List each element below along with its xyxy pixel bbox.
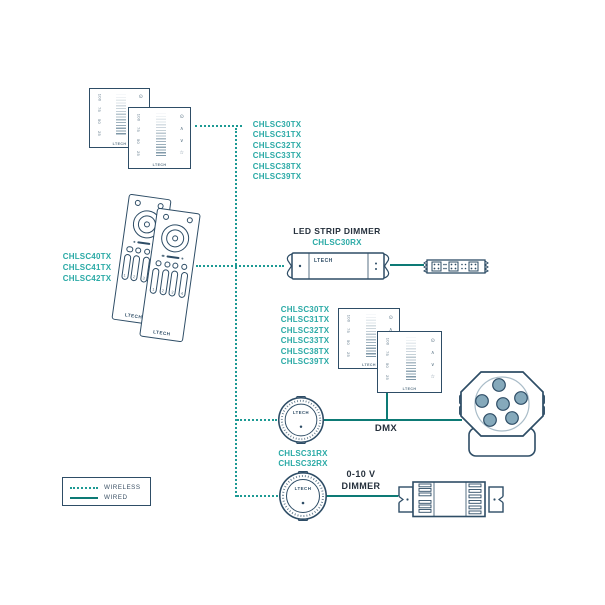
indicator-dot: [302, 502, 305, 505]
wall-panel-dimmer-front: 100 75 50 25 ⊙ ∧ ∨ ☆ LTECH: [377, 331, 442, 393]
indicator-dot: [300, 425, 302, 427]
scene-button: [143, 248, 150, 255]
model-label: CHLSC30TX: [276, 305, 334, 315]
zone-button: 1: [121, 254, 132, 281]
power-icon: ⊙: [180, 115, 184, 120]
zone-button: 1: [149, 268, 160, 295]
wireless-line-sample: [70, 487, 98, 489]
brightness-scale: 100 75 50 25: [384, 335, 392, 384]
legend-wireless-row: WIRELESS: [70, 483, 150, 493]
brightness-up-icon: ∧: [180, 127, 184, 132]
model-label: CHLSC33TX: [246, 151, 308, 161]
panel-buttons: ⊙ ∧ ∨ ☆: [431, 335, 435, 384]
scene-button: [181, 263, 188, 270]
led-strip-dimmer-model: CHLSC30RX: [284, 238, 390, 247]
on-button: [134, 200, 141, 207]
power-icon: ⊙: [389, 316, 393, 321]
wired-link-dmx: [323, 419, 462, 421]
scale-label: 75: [346, 327, 351, 332]
model-label: CHLSC42TX: [56, 273, 118, 284]
dial-ring: [165, 228, 185, 248]
wired-label: WIRED: [104, 494, 128, 501]
slider-bar: [137, 241, 150, 245]
wall-panel-model-list-mid: CHLSC30TX CHLSC31TX CHLSC32TX CHLSC33TX …: [276, 305, 334, 367]
power-icon: ⊙: [139, 95, 143, 100]
wired-link-receiver-to-strip: [390, 264, 424, 266]
brand-label: LTECH: [141, 328, 183, 339]
model-label: CHLSC32TX: [246, 141, 308, 151]
scene-button: [172, 262, 179, 269]
010v-line2: DIMMER: [330, 481, 392, 493]
scene-button: [164, 261, 171, 268]
model-label: CHLSC39TX: [276, 357, 334, 367]
slider-dot: [181, 257, 184, 260]
scale-label: 100: [136, 113, 141, 121]
wired-link-panel-to-dmx: [386, 392, 388, 419]
remote-top-buttons: [157, 209, 200, 225]
dmx-label: DMX: [366, 423, 406, 434]
wired-line-sample: [70, 497, 98, 499]
model-label: CHLSC33TX: [276, 336, 334, 346]
zone-buttons: 1 2 3 4: [146, 268, 191, 300]
scale-label: 50: [136, 139, 141, 144]
brand-label: LTECH: [295, 486, 312, 491]
scale-label: 75: [385, 351, 390, 356]
brand-label: LTECH: [293, 410, 309, 415]
zone-button: 2: [130, 255, 141, 282]
knob-receiver-dmx: LTECH: [277, 396, 325, 444]
slider-dot: [133, 240, 136, 243]
model-label: CHLSC32TX: [276, 326, 334, 336]
model-label: CHLSC39TX: [246, 172, 308, 182]
wall-panel-face: 100 75 50 25 ⊙ ∧ ∨ ☆ LTECH: [378, 332, 441, 392]
model-label: CHLSC40TX: [56, 251, 118, 262]
010v-dimmer-label: 0-10 V DIMMER: [330, 469, 392, 492]
brightness-up-icon: ∧: [431, 351, 435, 356]
zone-button: 2: [159, 269, 170, 296]
touch-slider: [406, 337, 416, 381]
wireless-branch-dmx-knob: [237, 419, 277, 421]
slider-dot: [161, 254, 164, 257]
model-label: CHLSC41TX: [56, 262, 118, 273]
diagram-canvas: { "brand": "LTECH", "colors": { "outline…: [0, 0, 605, 605]
terminal-dot: [375, 263, 377, 265]
wireless-link-panels-to-models: [195, 125, 242, 127]
brightness-scale: 100 75 50 25: [135, 111, 143, 160]
power-icon: ⊙: [431, 339, 435, 344]
led-strip-dimmer-receiver: LTECH: [284, 250, 392, 282]
model-label: CHLSC30TX: [246, 120, 308, 130]
brand-label: LTECH: [378, 387, 441, 391]
brand-label: LTECH: [314, 258, 333, 264]
brightness-scale: 100 75 50 25: [345, 312, 353, 360]
wall-panel-dimmer-front: 100 75 50 25 ⊙ ∧ ∨ ☆ LTECH: [128, 107, 191, 169]
model-label: CHLSC31TX: [276, 315, 334, 325]
wall-panel-face: 100 75 50 25 ⊙ ∧ ∨ ☆ LTECH: [129, 108, 190, 168]
end-tab-right: [489, 487, 503, 512]
knob-inner: [285, 404, 317, 436]
scale-label: 25: [385, 375, 390, 380]
slider-bar: [166, 255, 179, 259]
dial-wheel: [159, 223, 191, 255]
model-label: CHLSC31TX: [246, 130, 308, 140]
panel-buttons: ⊙ ∧ ∨ ☆: [180, 111, 184, 160]
terminal-dot: [493, 498, 495, 500]
remote-model-list: CHLSC40TX CHLSC41TX CHLSC42TX: [56, 251, 118, 285]
scale-label: 100: [97, 94, 102, 102]
led-strip: [422, 256, 490, 277]
terminal-dot: [406, 498, 408, 500]
wireless-branch-010v-knob: [237, 495, 278, 497]
model-label: CHLSC32RX: [272, 459, 334, 469]
led-strip-dimmer-title: LED STRIP DIMMER: [284, 226, 390, 237]
wired-link-knob-to-dimmer: [326, 495, 400, 497]
scene-button: [126, 245, 133, 252]
scale-label: 75: [136, 127, 141, 132]
knob-inner: [287, 480, 320, 513]
knob-receiver-010v: LTECH: [278, 471, 328, 521]
terminal-dot: [299, 265, 301, 267]
touch-slider: [156, 113, 166, 157]
par-light-fixture: [459, 370, 545, 458]
scene-icon: ☆: [431, 375, 435, 380]
touch-slider: [116, 94, 126, 136]
scene-icon: ☆: [180, 151, 184, 156]
scale-label: 50: [385, 363, 390, 368]
010v-line1: 0-10 V: [330, 469, 392, 481]
end-tab-left: [399, 487, 413, 512]
scale-label: 75: [97, 107, 102, 112]
scene-button: [135, 247, 142, 254]
receiver-body: [292, 253, 384, 279]
knob-model-list: CHLSC31RX CHLSC32RX: [272, 449, 334, 469]
model-label: CHLSC38TX: [276, 347, 334, 357]
model-label: CHLSC31RX: [272, 449, 334, 459]
scale-label: 25: [97, 131, 102, 136]
scale-label: 25: [346, 351, 351, 356]
off-button: [186, 217, 193, 224]
legend: WIRELESS WIRED: [62, 477, 151, 506]
scale-label: 25: [136, 151, 141, 156]
dial-center: [172, 235, 179, 242]
brightness-down-icon: ∨: [431, 363, 435, 368]
model-label: CHLSC38TX: [246, 162, 308, 172]
wireless-label: WIRELESS: [104, 484, 141, 491]
brightness-scale: 100 75 50 25: [96, 92, 104, 139]
wireless-link-remote-to-receiver: [196, 265, 284, 267]
legend-wired-row: WIRED: [70, 493, 150, 503]
scale-label: 50: [346, 339, 351, 344]
terminal-dot: [375, 268, 377, 270]
zone-button: 3: [168, 271, 179, 298]
zone-button: 4: [178, 272, 189, 299]
scale-label: 100: [346, 314, 351, 322]
scene-button: [155, 259, 162, 266]
scale-label: 100: [385, 337, 390, 345]
touch-slider: [366, 314, 376, 357]
brightness-down-icon: ∨: [180, 139, 184, 144]
scale-label: 50: [97, 119, 102, 124]
wall-panel-model-list-top: CHLSC30TX CHLSC31TX CHLSC32TX CHLSC33TX …: [246, 120, 308, 182]
brand-label: LTECH: [129, 163, 190, 167]
dial-center: [143, 221, 150, 228]
dimmer-010v-unit: [398, 479, 504, 519]
on-button: [163, 213, 170, 220]
wireless-bus-vertical: [235, 128, 237, 497]
